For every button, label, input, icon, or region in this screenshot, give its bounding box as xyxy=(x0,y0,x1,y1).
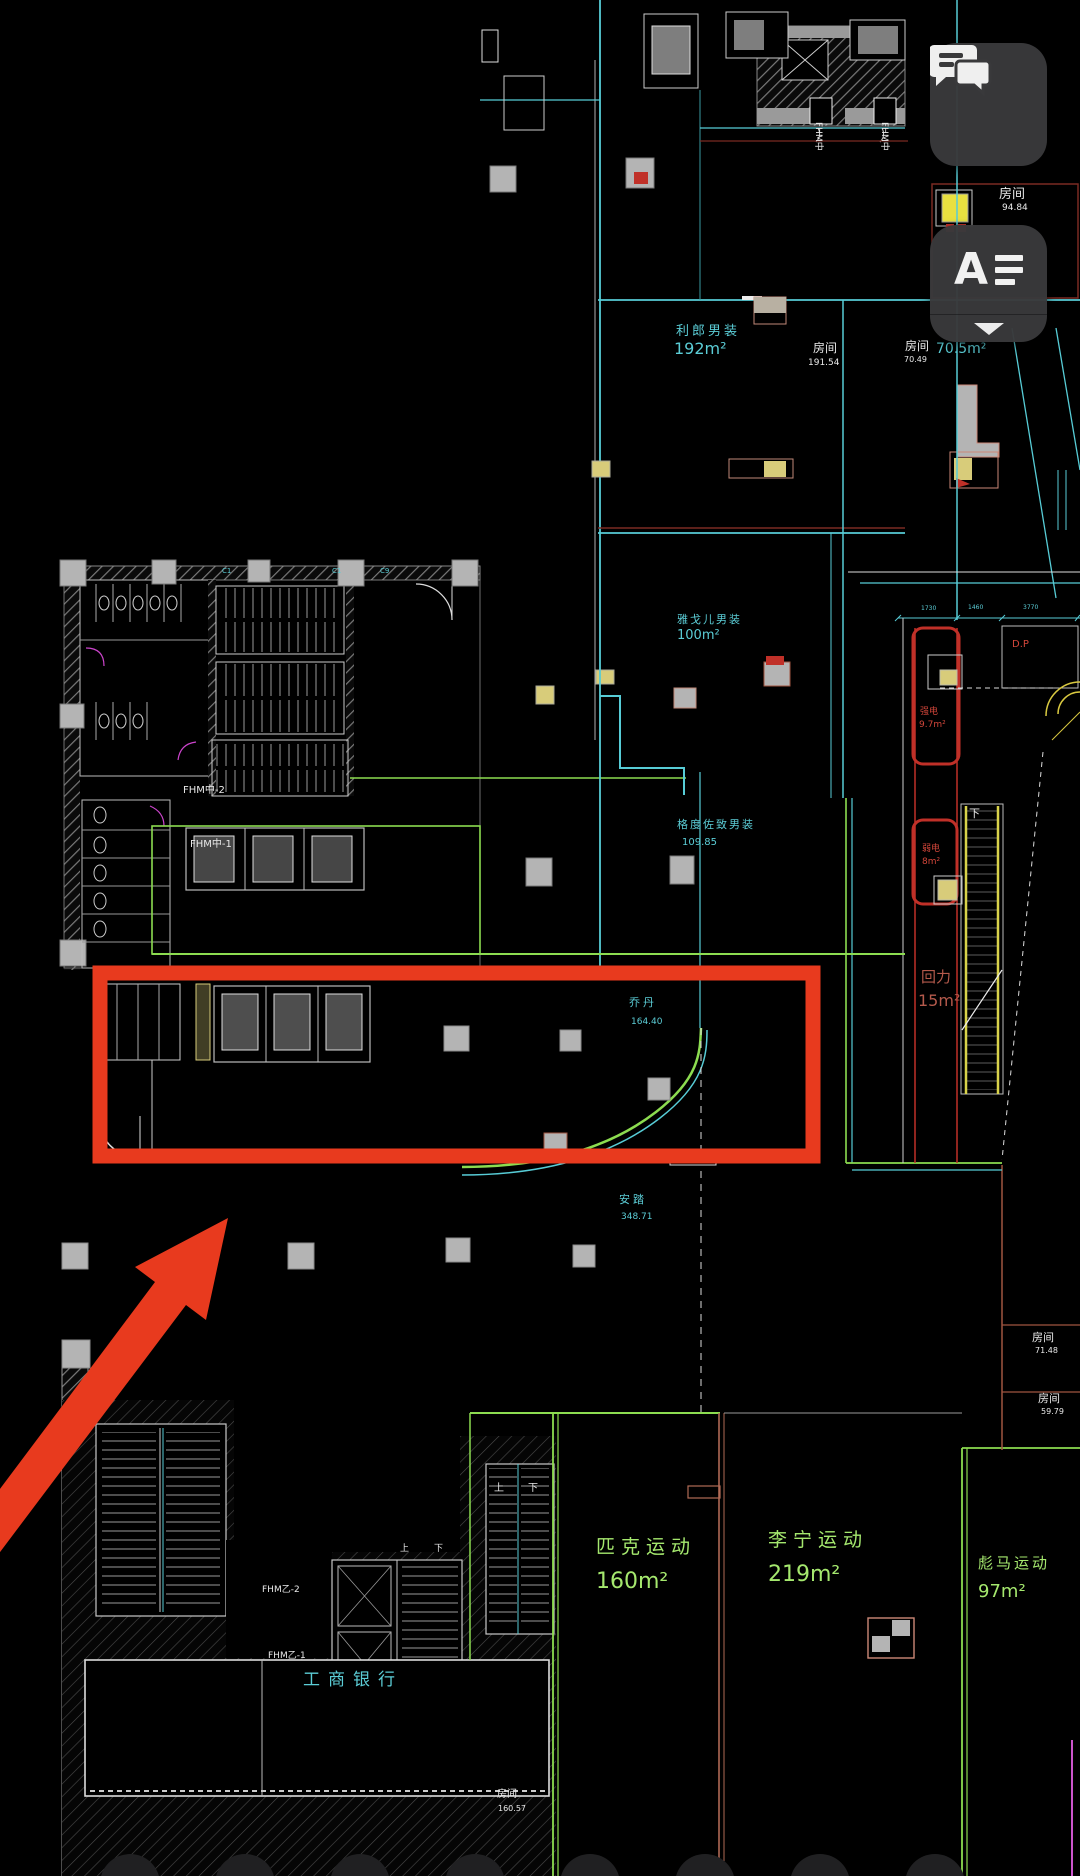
room-label: 房间 xyxy=(1032,1332,1054,1344)
store-label-qiaodan: 乔丹 xyxy=(629,997,657,1009)
store-label-lining: 李宁运动 xyxy=(768,1531,868,1551)
store-area-lilang: 192m² xyxy=(674,341,727,358)
stair-up-label: 上 xyxy=(400,1545,409,1554)
store-area-huili: 15m² xyxy=(918,993,960,1010)
stair-down-label: 下 xyxy=(434,1545,443,1554)
store-area-pike: 160m² xyxy=(596,1570,668,1593)
store-label-icbc: 工商银行 xyxy=(303,1672,403,1690)
chat-bubbles-icon xyxy=(930,43,992,97)
service-strip xyxy=(848,470,1080,1163)
top-core-block xyxy=(480,0,957,620)
fhm-riser-label: FHM中 xyxy=(813,122,822,151)
dimension-text: 1460 xyxy=(968,605,983,611)
fhm-riser-label: FHM中 xyxy=(879,122,888,151)
store-label-pike: 匹克运动 xyxy=(596,1538,696,1558)
annotation-letter: A xyxy=(954,248,988,292)
grid-axis-label: C1 xyxy=(332,568,341,575)
room-label: 房间 xyxy=(497,1790,517,1801)
store-area-youngor: 100m² xyxy=(677,629,720,643)
chevron-down-icon[interactable] xyxy=(930,314,1047,342)
store-label-youngor: 雅戈儿男装 xyxy=(677,614,742,626)
room-label: 房间 xyxy=(813,342,837,355)
room-label: 房间 xyxy=(1038,1393,1060,1405)
store-label-lilang: 利郎男装 xyxy=(676,325,740,339)
room-label-dp: D.P xyxy=(1012,640,1029,651)
room-area-ruodian: 8m² xyxy=(922,858,940,867)
room-area-qiangdian: 9.7m² xyxy=(919,721,946,730)
room-label: 房间 xyxy=(999,188,1025,202)
store-area-anta: 348.71 xyxy=(621,1213,653,1222)
store-label-gedu: 格度佐致男装 xyxy=(677,819,755,831)
store-label-anta: 安踏 xyxy=(619,1194,647,1206)
escalator-down-label: 下 xyxy=(969,808,980,820)
store-area-qiaodan: 164.40 xyxy=(631,1018,663,1027)
dimension-text: 3770 xyxy=(1023,605,1038,611)
stair-up-label: 上 xyxy=(494,1484,504,1495)
store-area-puma: 97m² xyxy=(978,1583,1026,1602)
room-area: 59.79 xyxy=(1041,1408,1064,1416)
fhm-label: FHM乙-1 xyxy=(268,1652,306,1661)
room-area: 71.48 xyxy=(1035,1347,1058,1355)
dimension-text: 1730 xyxy=(921,606,936,612)
room-area: 191.54 xyxy=(808,359,840,368)
store-area-gedu: 109.85 xyxy=(682,838,717,849)
cad-floorplan-canvas[interactable]: 房间 94.84 FHM中 FHM中 利郎男装 192m² 房间 191.54 … xyxy=(0,0,1080,1876)
room-area: 94.84 xyxy=(1002,204,1028,213)
room-label: 房间 xyxy=(905,340,929,353)
annotated-corridor-interior xyxy=(96,954,905,1165)
grid-axis-label: C9 xyxy=(380,568,389,575)
text-lines-icon: A xyxy=(930,225,1047,314)
room-area: 70.49 xyxy=(904,356,927,364)
room-area: 160.57 xyxy=(498,1805,526,1813)
annotation-style-button[interactable]: A xyxy=(930,225,1047,342)
comments-button[interactable] xyxy=(930,43,1047,166)
stair-down-label: 下 xyxy=(528,1484,538,1495)
fhm-label: FHM中-1 xyxy=(190,840,232,851)
store-area-lining: 219m² xyxy=(768,1563,840,1586)
grid-axis-label: C1 xyxy=(222,568,231,575)
shop-boundaries xyxy=(470,1165,1080,1876)
room-area-cyan: 70.5m² xyxy=(936,342,986,357)
fhm-label: FHM乙-2 xyxy=(262,1586,300,1595)
room-label-qiangdian: 强电 xyxy=(920,708,938,717)
store-label-huili: 回力 xyxy=(921,970,951,986)
store-label-puma: 彪马运动 xyxy=(978,1556,1050,1572)
fhm-label: FHM中-2 xyxy=(183,786,225,797)
room-label-ruodian: 弱电 xyxy=(922,845,940,854)
floorplan-drawing xyxy=(0,0,1080,1876)
